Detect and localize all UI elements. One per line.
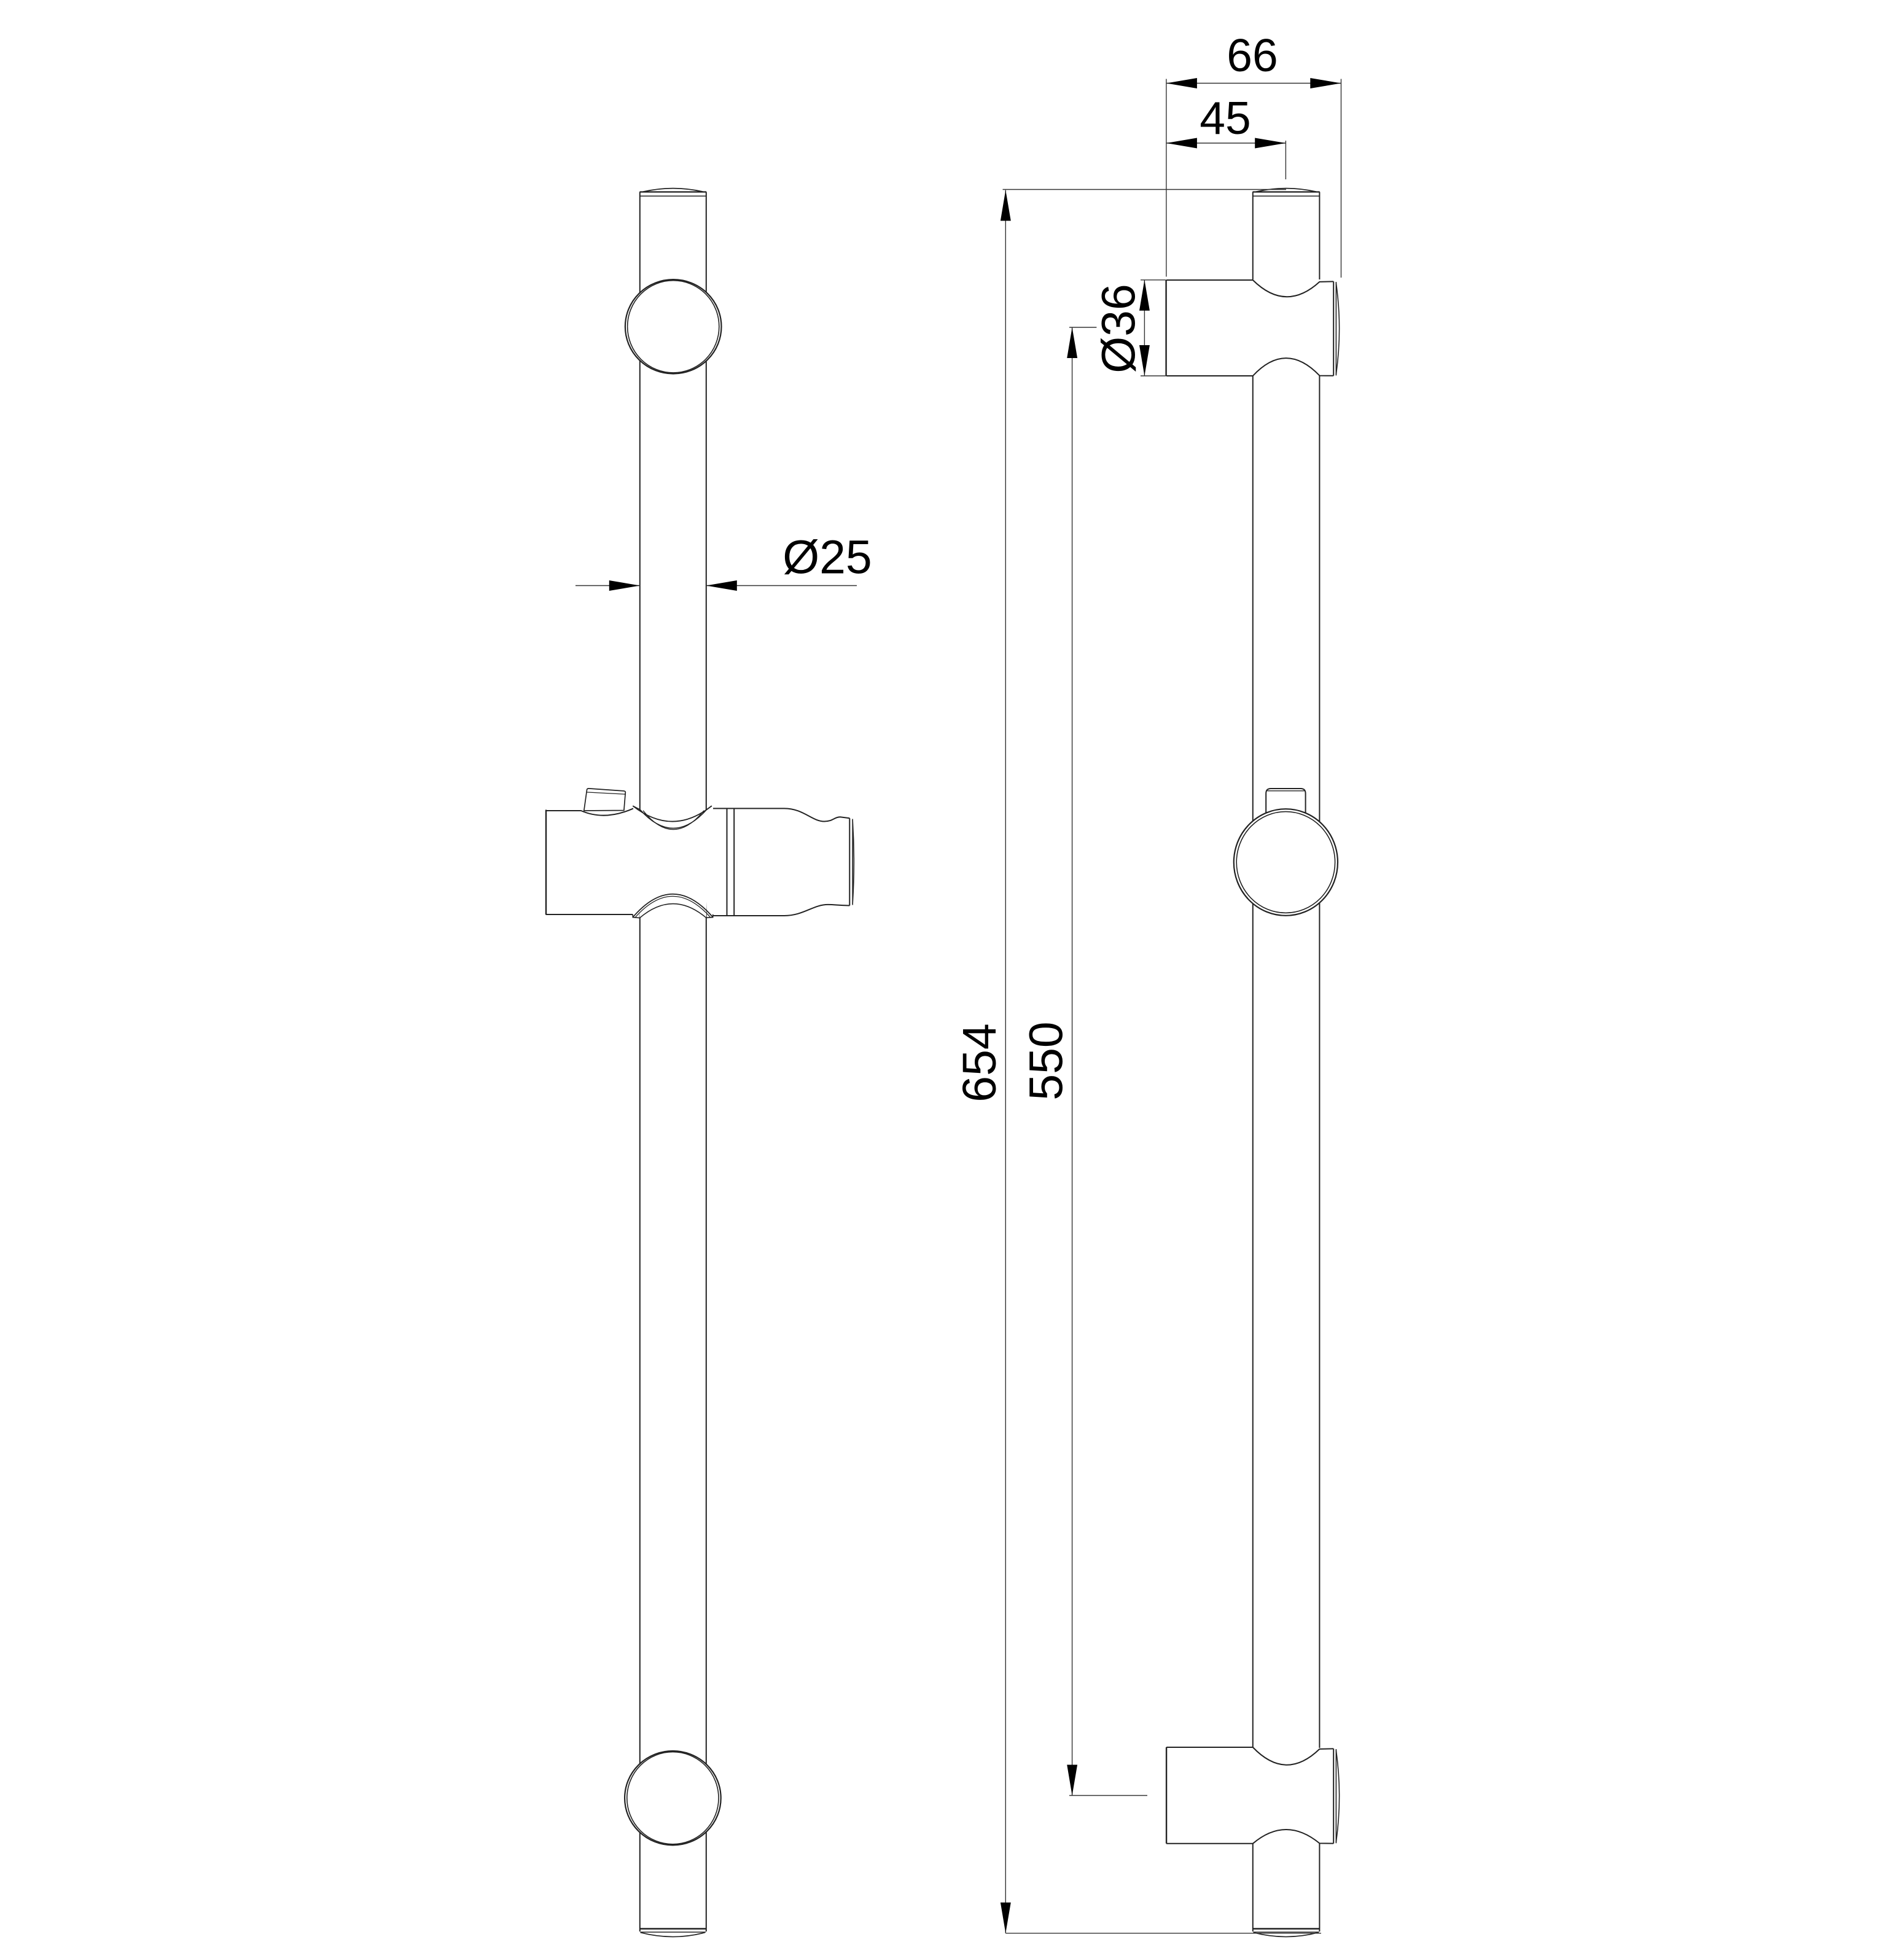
- svg-text:Ø36: Ø36: [1093, 284, 1145, 373]
- svg-text:Ø25: Ø25: [782, 531, 872, 584]
- svg-text:654: 654: [953, 1023, 1006, 1102]
- svg-text:66: 66: [1227, 29, 1278, 81]
- svg-text:550: 550: [1020, 1021, 1073, 1100]
- svg-text:45: 45: [1200, 92, 1250, 144]
